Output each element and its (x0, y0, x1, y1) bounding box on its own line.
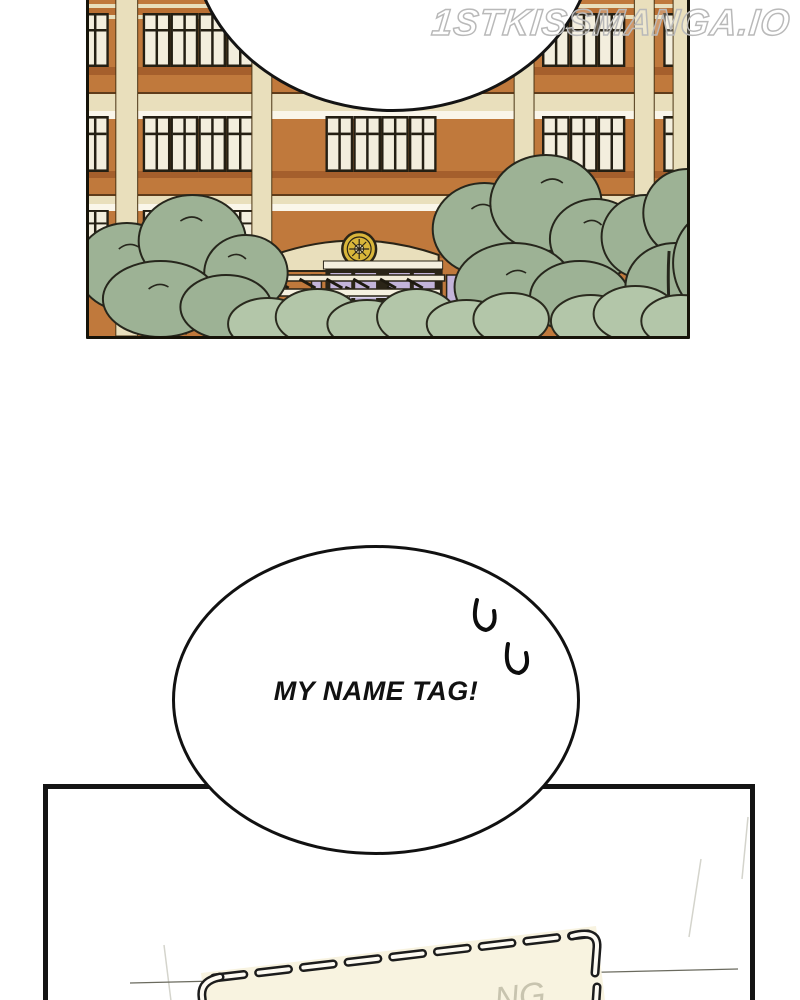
window-row-middle (89, 116, 687, 172)
speech-bubble-main: MY NAME TAG! (172, 545, 580, 855)
manga-page: 1STKISSMANGA.IO MY NAME TAG! NG (0, 0, 800, 1000)
emphasis-marks-icon (175, 548, 577, 852)
